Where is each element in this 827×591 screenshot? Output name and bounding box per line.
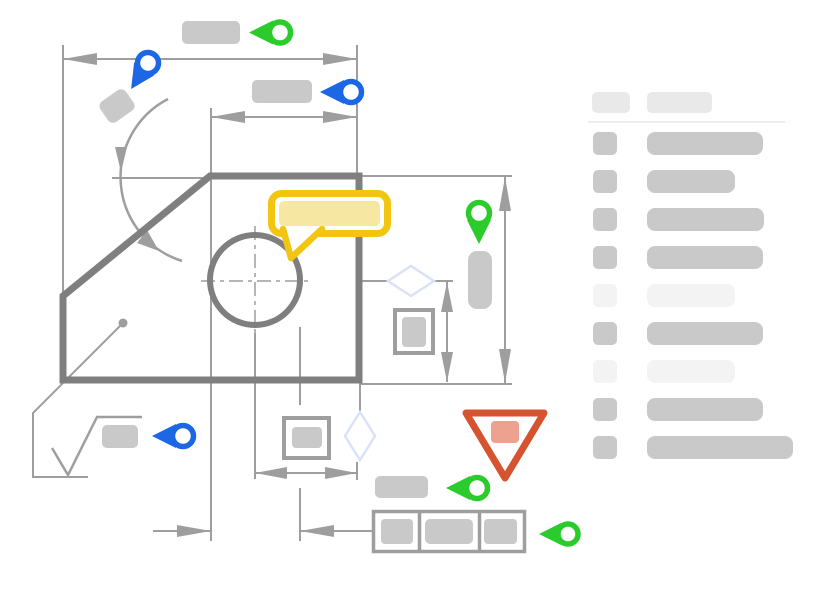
dimension-chamfer-angle	[115, 99, 182, 261]
annotation-item-icon-placeholder	[593, 132, 617, 155]
header-icon-placeholder	[592, 92, 630, 113]
comment-callout[interactable]	[272, 194, 388, 259]
dimension-hole-diameter	[153, 525, 374, 537]
dimension-overall-height	[499, 177, 511, 383]
label-bottom[interactable]	[375, 476, 428, 498]
hotspot-diamond-right[interactable]	[388, 266, 434, 296]
dimension-overall-width	[63, 53, 357, 65]
dimension-center-to-edge	[255, 467, 357, 479]
annotation-item-label-placeholder	[647, 436, 793, 459]
marker-pin-right-face[interactable]	[467, 203, 491, 245]
annotation-item-label-placeholder	[647, 132, 763, 155]
annotation-list-item[interactable]	[588, 208, 800, 231]
label-overall-width[interactable]	[182, 21, 240, 44]
annotation-list-item[interactable]	[588, 436, 800, 459]
annotation-list-item[interactable]	[588, 132, 800, 155]
annotation-item-icon-placeholder	[593, 246, 617, 269]
label-surface-finish[interactable]	[102, 425, 138, 448]
marker-pin-chamfer-angle[interactable]	[121, 48, 164, 96]
fcf-cell-tolerance	[425, 519, 473, 544]
annotation-item-label-placeholder	[647, 322, 763, 345]
annotation-item-icon-placeholder	[593, 398, 617, 421]
annotation-list-header	[588, 92, 800, 113]
marker-pin-control-frame[interactable]	[539, 523, 578, 545]
annotation-list-item[interactable]	[588, 398, 800, 421]
annotation-list	[588, 132, 800, 459]
annotation-item-icon-placeholder	[593, 284, 617, 307]
annotation-item-label-placeholder	[647, 398, 763, 421]
annotation-item-label-placeholder	[647, 208, 764, 231]
annotation-item-icon-placeholder	[593, 436, 617, 459]
annotation-item-label-placeholder	[647, 170, 735, 193]
annotation-list-item[interactable]	[588, 170, 800, 193]
annotation-item-label-placeholder	[647, 246, 763, 269]
extension-lines	[63, 45, 512, 541]
annotation-list-item[interactable]	[588, 322, 800, 345]
label-right-face[interactable]	[468, 251, 492, 309]
label-chamfer-angle[interactable]	[97, 87, 137, 125]
hotspot-diamond-bottom[interactable]	[345, 412, 375, 460]
fcf-cell-datum	[484, 519, 517, 544]
label-upper-width[interactable]	[252, 80, 312, 103]
annotation-list-item[interactable]	[588, 246, 800, 269]
drawing-review-screen	[0, 0, 827, 591]
dimension-inner-height	[441, 282, 453, 382]
annotation-item-icon-placeholder	[593, 208, 617, 231]
annotation-list-item[interactable]	[588, 360, 800, 383]
datum-box-right[interactable]	[395, 310, 433, 353]
annotation-item-label-placeholder	[647, 360, 735, 383]
annotation-item-icon-placeholder	[593, 360, 617, 383]
annotation-list-item[interactable]	[588, 284, 800, 307]
annotation-item-icon-placeholder	[593, 170, 617, 193]
datum-box-bottom[interactable]	[284, 418, 329, 458]
annotation-item-label-placeholder	[647, 284, 735, 307]
annotation-panel	[588, 92, 800, 474]
marker-pin-bottom-label[interactable]	[446, 476, 488, 500]
drawing-canvas	[0, 0, 585, 591]
marker-pin-upper-width[interactable]	[320, 80, 362, 104]
marker-pin-overall-width[interactable]	[249, 21, 291, 45]
marker-pin-surface-finish[interactable]	[152, 424, 194, 448]
annotation-item-icon-placeholder	[593, 322, 617, 345]
warning-triangle[interactable]	[466, 413, 544, 478]
header-label-placeholder	[647, 92, 712, 113]
fcf-cell-symbol	[381, 519, 413, 544]
feature-control-frame[interactable]	[374, 512, 525, 552]
panel-divider	[588, 121, 785, 123]
dimension-upper-width	[211, 111, 357, 123]
